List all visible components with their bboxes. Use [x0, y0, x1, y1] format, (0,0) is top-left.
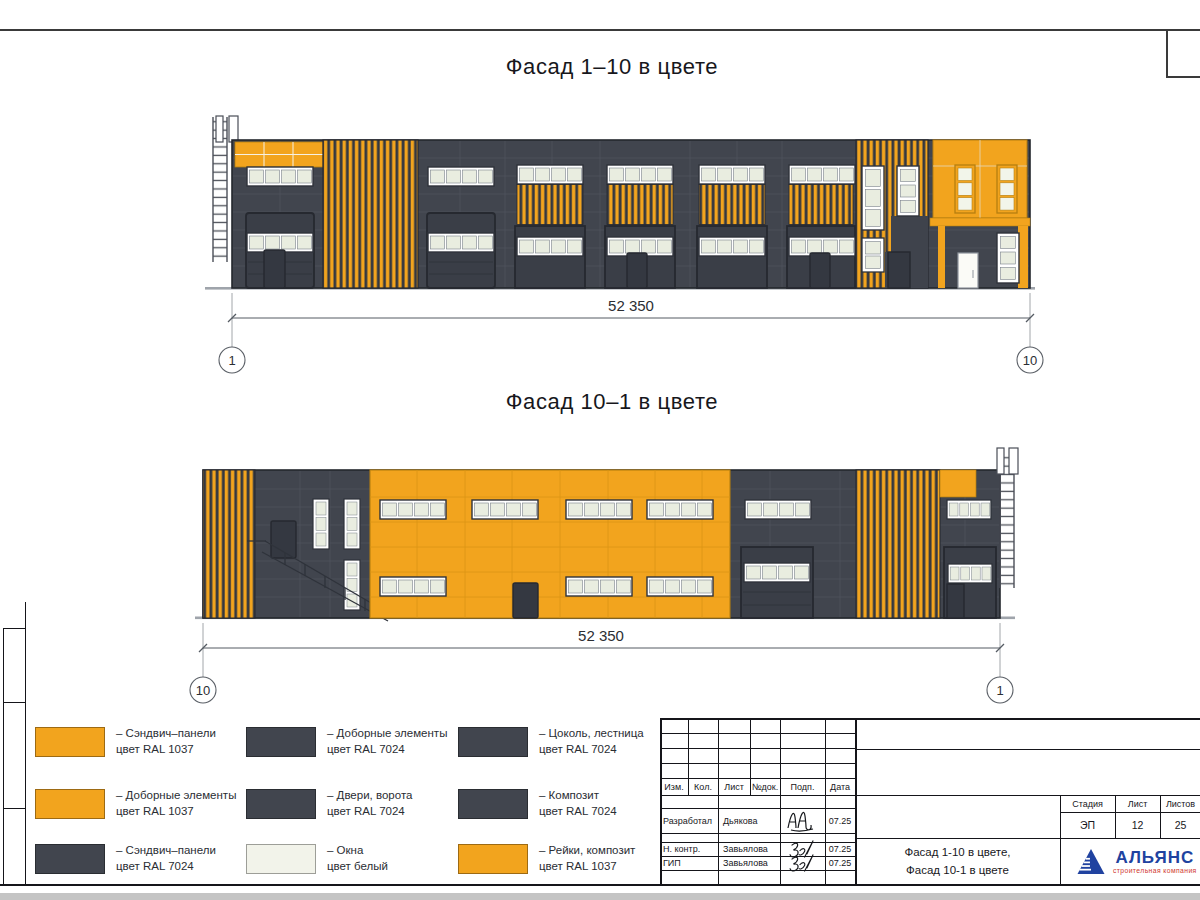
personnel-door [947, 584, 964, 618]
window-band [566, 500, 632, 519]
stair-window [897, 166, 919, 216]
gate-section [741, 500, 813, 618]
stair-window [862, 238, 884, 272]
stage-value: ЭП [1060, 812, 1115, 838]
dimension-facade1: 52 350 1 10 [219, 293, 1043, 373]
frame-left-cell-line [3, 628, 4, 884]
personnel-door [627, 253, 647, 288]
company-logo: АЛЬЯНС строительная компания [1060, 838, 1200, 884]
sheet-label: Лист [1115, 795, 1160, 812]
axis-label: 10 [196, 683, 210, 698]
stamp-name: Завьялова [720, 856, 780, 870]
frame-left-divider [3, 628, 25, 629]
louver-end-column [203, 470, 255, 618]
stamp-header-data: Дата [825, 778, 855, 795]
stair-window [344, 499, 360, 549]
document-name: Фасад 1-10 в цвете, Фасад 10-1 в цвете [855, 838, 1060, 884]
legend-label: – Рейки, композитцвет RAL 1037 [539, 843, 635, 874]
frame-left-divider [3, 702, 25, 703]
personnel-door [264, 250, 285, 288]
legend-swatch [246, 727, 316, 757]
axis-label: 10 [1023, 353, 1037, 368]
sheets-value: 25 [1160, 812, 1200, 838]
louver-tower [323, 140, 418, 288]
axis-label: 1 [996, 683, 1003, 698]
stamp-header-list: Лист [718, 778, 750, 795]
stage-label: Стадия [1060, 795, 1115, 812]
facade2-title: Фасад 10–1 в цвете [12, 389, 1200, 415]
legend-label: – Доборные элементыцвет RAL 7024 [327, 726, 447, 757]
end-window [997, 165, 1017, 213]
legend-label: – Сэндвич–панелицвет RAL 1037 [116, 726, 216, 757]
personnel-door [810, 253, 830, 288]
dimension-facade2: 52 350 10 1 [190, 623, 1013, 703]
louver-mid-section [856, 470, 940, 618]
legend-swatch [35, 844, 105, 874]
legend-label: – Окнацвет белый [327, 843, 388, 874]
orange-corner-panel [235, 142, 323, 167]
legend-swatch [35, 727, 105, 757]
logo-text: АЛЬЯНС строительная компания [1113, 849, 1197, 874]
title-block: Изм. Кол. Лист №док. Подп. Дата Разработ… [660, 718, 1200, 884]
frame-bottom-line [0, 884, 1200, 886]
entrance-door [888, 252, 910, 288]
stamp-name: Завьялова [720, 842, 780, 856]
legend-label: – Доборные элементыцвет RAL 1037 [116, 788, 236, 819]
legend-swatch [246, 789, 316, 819]
window-band [380, 500, 446, 519]
sheet-edge-strip [0, 893, 1200, 900]
dimension-value: 52 350 [578, 627, 624, 644]
logo-pyramid-icon [1076, 848, 1106, 875]
window-band [472, 500, 538, 519]
stamp-role: Н. контр. [660, 842, 718, 856]
stamp-date: 07.25 [825, 808, 855, 833]
frame-left-divider [3, 808, 25, 809]
window-band [947, 500, 991, 519]
sheet-value: 12 [1115, 812, 1160, 838]
facade-2-drawing: 52 350 10 1 [185, 435, 1035, 705]
stamp-header-podp: Подп. [780, 778, 825, 795]
logo-company-name: АЛЬЯНС [1113, 849, 1197, 866]
drawing-sheet: { "colors":{ "panel_orange":"#F2A41E", "… [0, 0, 1200, 900]
facade-1-drawing: 52 350 1 10 [195, 105, 1045, 375]
legend-swatch [458, 727, 528, 757]
legend-swatch [246, 844, 316, 874]
stamp-role: Разработал [660, 808, 718, 833]
stairwell-strip [856, 140, 928, 288]
stamp-role: ГИП [660, 856, 718, 870]
legend-swatch [458, 844, 528, 874]
window-band [745, 500, 811, 519]
stamp-date: 07.25 [825, 856, 855, 870]
stamp-date: 07.25 [825, 842, 855, 856]
window-band [428, 167, 494, 186]
stair-window [344, 560, 360, 610]
entrance-door [513, 583, 538, 618]
signature [784, 853, 824, 873]
window-band [647, 500, 713, 519]
window-band [247, 167, 313, 186]
legend-label: – Цоколь, лестницацвет RAL 7024 [539, 726, 644, 757]
stamp-name: Дьякова [720, 808, 780, 833]
roof-ladder [997, 448, 1018, 588]
legend-label: – Композитцвет RAL 7024 [539, 788, 617, 819]
stamp-header-kol: Кол. [688, 778, 718, 795]
legend-swatch [458, 789, 528, 819]
logo-tagline: строительная компания [1113, 867, 1197, 874]
window-band [380, 577, 446, 596]
stamp-header-ndok: №док. [750, 778, 780, 795]
white-door [958, 253, 978, 288]
window-band [647, 577, 713, 596]
gate-bay-2 [427, 213, 495, 288]
orange-main-section [370, 470, 730, 618]
signature [782, 806, 824, 834]
axis-label: 1 [228, 353, 235, 368]
sheets-label: Листов [1160, 795, 1200, 812]
end-window [997, 233, 1019, 283]
stair-window [313, 499, 329, 549]
end-window [955, 165, 975, 213]
stamp-header-izm: Изм. [660, 778, 688, 795]
gate-bay-1 [246, 213, 314, 288]
facade1-title: Фасад 1–10 в цвете [12, 54, 1200, 80]
legend-label: – Двери, воротацвет RAL 7024 [327, 788, 412, 819]
frame-left-line [25, 602, 26, 884]
stair-window [862, 166, 884, 230]
frame-top-line [0, 29, 1200, 31]
legend-swatch [35, 789, 105, 819]
window-band [566, 577, 632, 596]
dimension-value: 52 350 [608, 297, 654, 314]
legend-label: – Сэндвич–панелицвет RAL 7024 [116, 843, 216, 874]
